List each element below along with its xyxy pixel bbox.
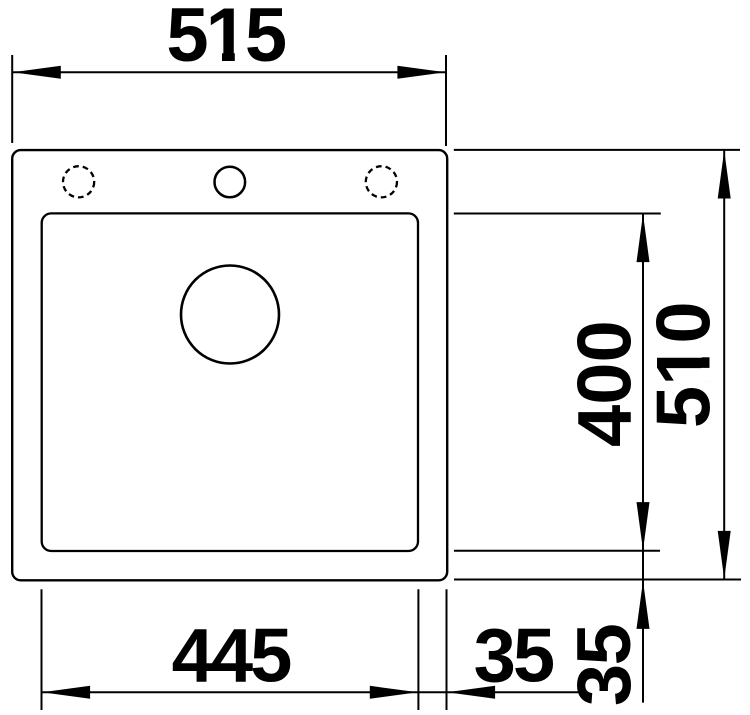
svg-text:400: 400 (563, 320, 648, 447)
svg-text:510: 510 (642, 301, 727, 428)
svg-text:515: 515 (166, 0, 286, 78)
svg-text:445: 445 (172, 614, 292, 699)
svg-text:35: 35 (562, 624, 647, 706)
svg-text:35: 35 (474, 614, 554, 699)
